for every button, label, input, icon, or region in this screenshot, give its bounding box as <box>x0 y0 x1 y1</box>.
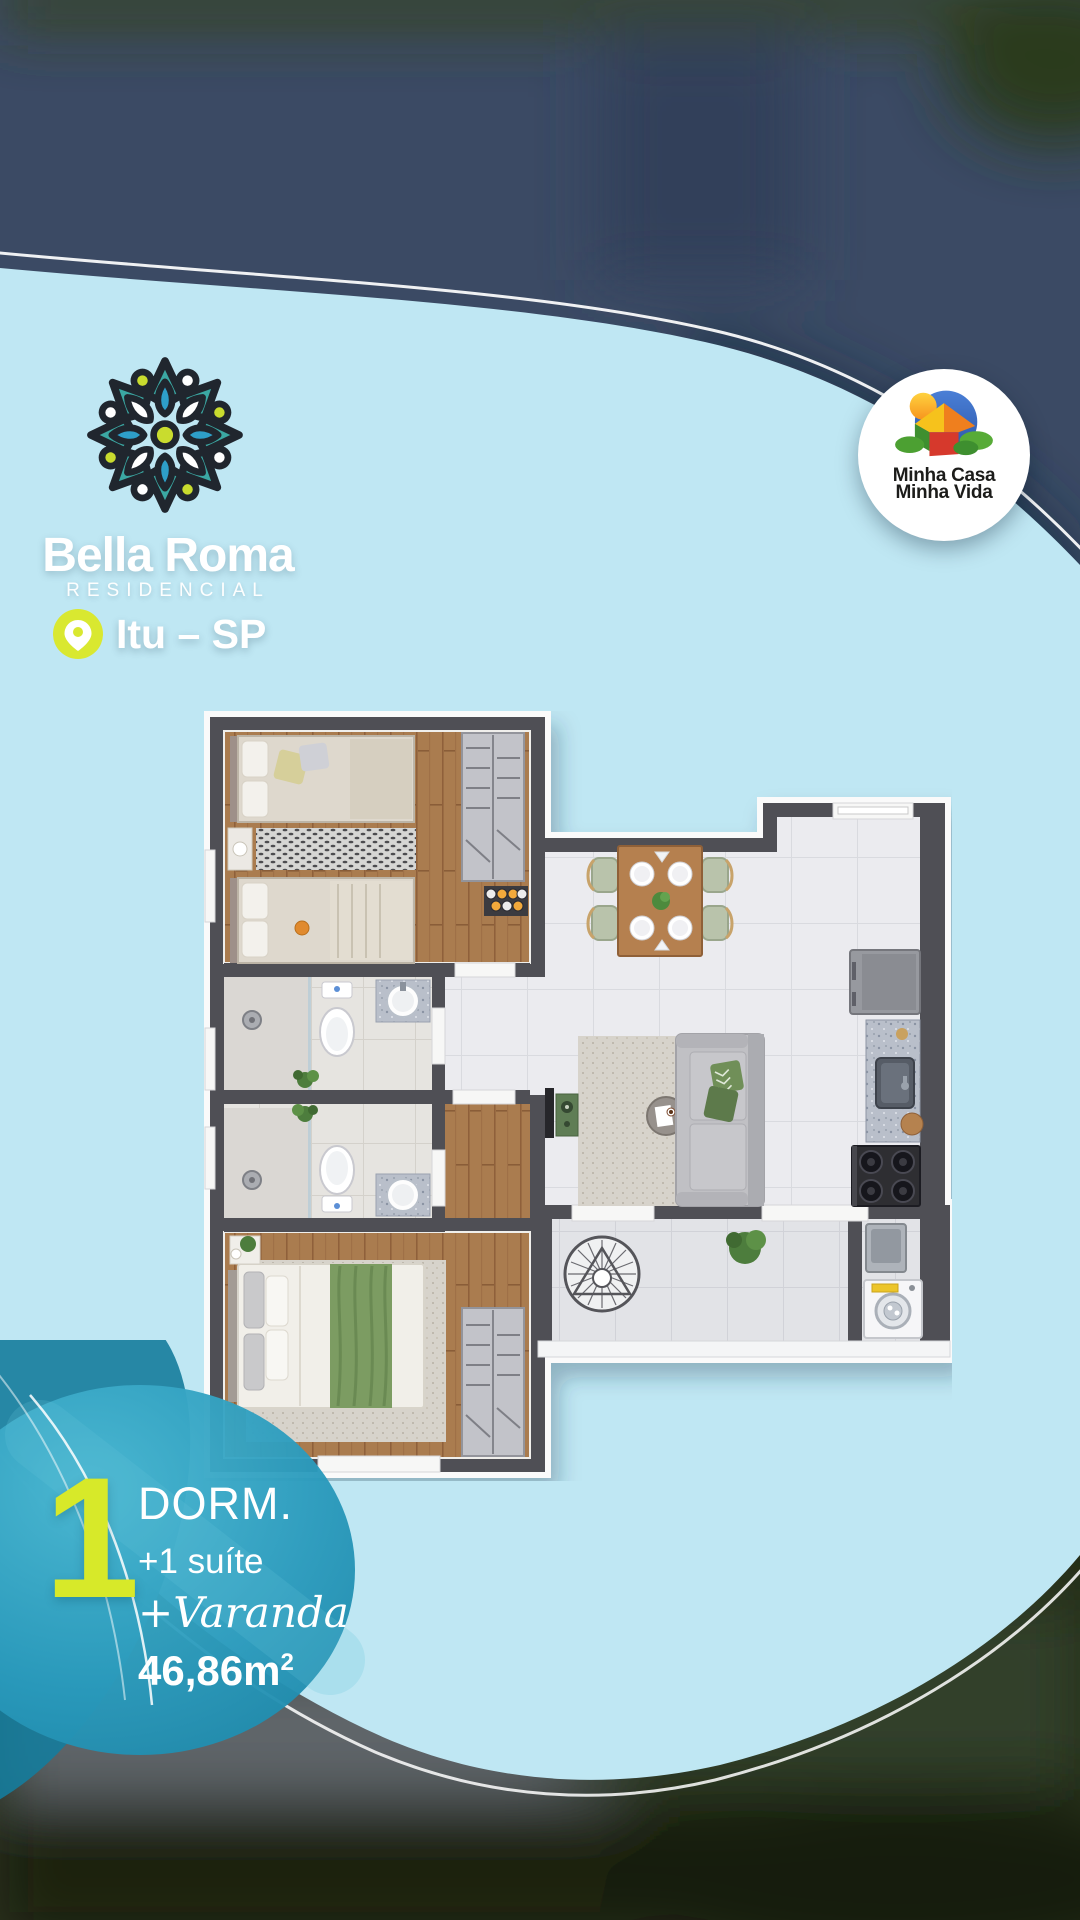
map-pin-icon <box>52 608 104 660</box>
suite-label: +1 suíte <box>138 1542 349 1582</box>
mcmv-badge: Minha Casa Minha Vida <box>858 369 1030 541</box>
dorm-label: DORM. <box>138 1478 349 1530</box>
hall-floor <box>437 977 530 1095</box>
brand-name: Bella Roma <box>0 528 336 583</box>
balcony-sliding-door <box>572 1205 654 1221</box>
mcmv-house-icon <box>892 383 996 469</box>
brand-subtitle: RESIDENCIAL <box>0 580 336 602</box>
balcony-sliding-door2 <box>762 1205 868 1221</box>
area-label: 46,86m2 <box>138 1647 349 1695</box>
promo-card: Bella Roma RESIDENCIAL Itu – SP <box>0 0 1080 1920</box>
unit-count: 1 <box>44 1452 140 1624</box>
mcmv-line2: Minha Vida <box>896 482 993 503</box>
balcony-railing <box>538 1341 950 1357</box>
location-text: Itu – SP <box>116 611 266 658</box>
suite-vestibule-floor <box>445 1104 530 1218</box>
varanda-label: +Varanda <box>138 1588 349 1637</box>
unit-details: DORM. +1 suíte +Varanda 46,86m2 <box>138 1478 349 1695</box>
brand-logo-mandala-icon <box>70 340 260 530</box>
location-row: Itu – SP <box>52 608 266 660</box>
